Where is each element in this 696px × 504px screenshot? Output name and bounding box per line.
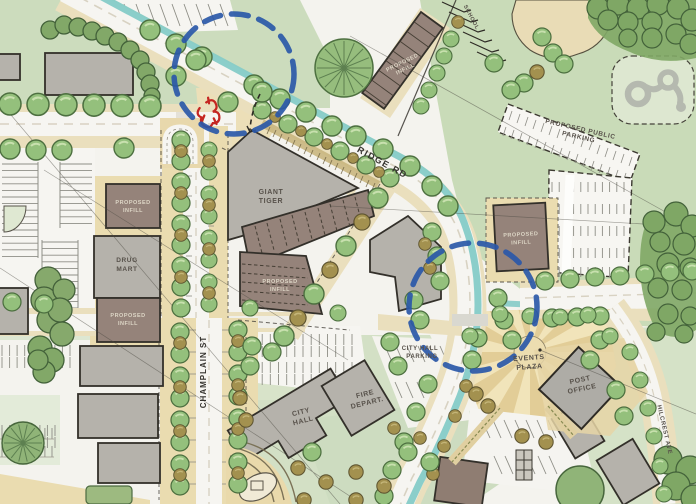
svg-text:PROPOSED: PROPOSED xyxy=(262,279,297,285)
svg-text:INFILL: INFILL xyxy=(270,287,290,293)
svg-text:PROPOSED: PROPOSED xyxy=(115,200,150,206)
svg-text:CITY HALL: CITY HALL xyxy=(402,346,439,352)
svg-text:INFILL: INFILL xyxy=(118,321,138,327)
svg-text:CHAMPLAIN ST: CHAMPLAIN ST xyxy=(199,336,208,408)
svg-text:TIGER: TIGER xyxy=(259,198,283,205)
svg-text:GIANT: GIANT xyxy=(259,189,284,196)
svg-text:INFILL: INFILL xyxy=(123,208,143,214)
svg-text:DRUG: DRUG xyxy=(116,257,138,264)
svg-text:MART: MART xyxy=(116,266,137,273)
svg-text:PARKING: PARKING xyxy=(406,354,437,360)
svg-text:INFILL: INFILL xyxy=(511,239,532,246)
svg-text:PROPOSED: PROPOSED xyxy=(110,313,145,319)
